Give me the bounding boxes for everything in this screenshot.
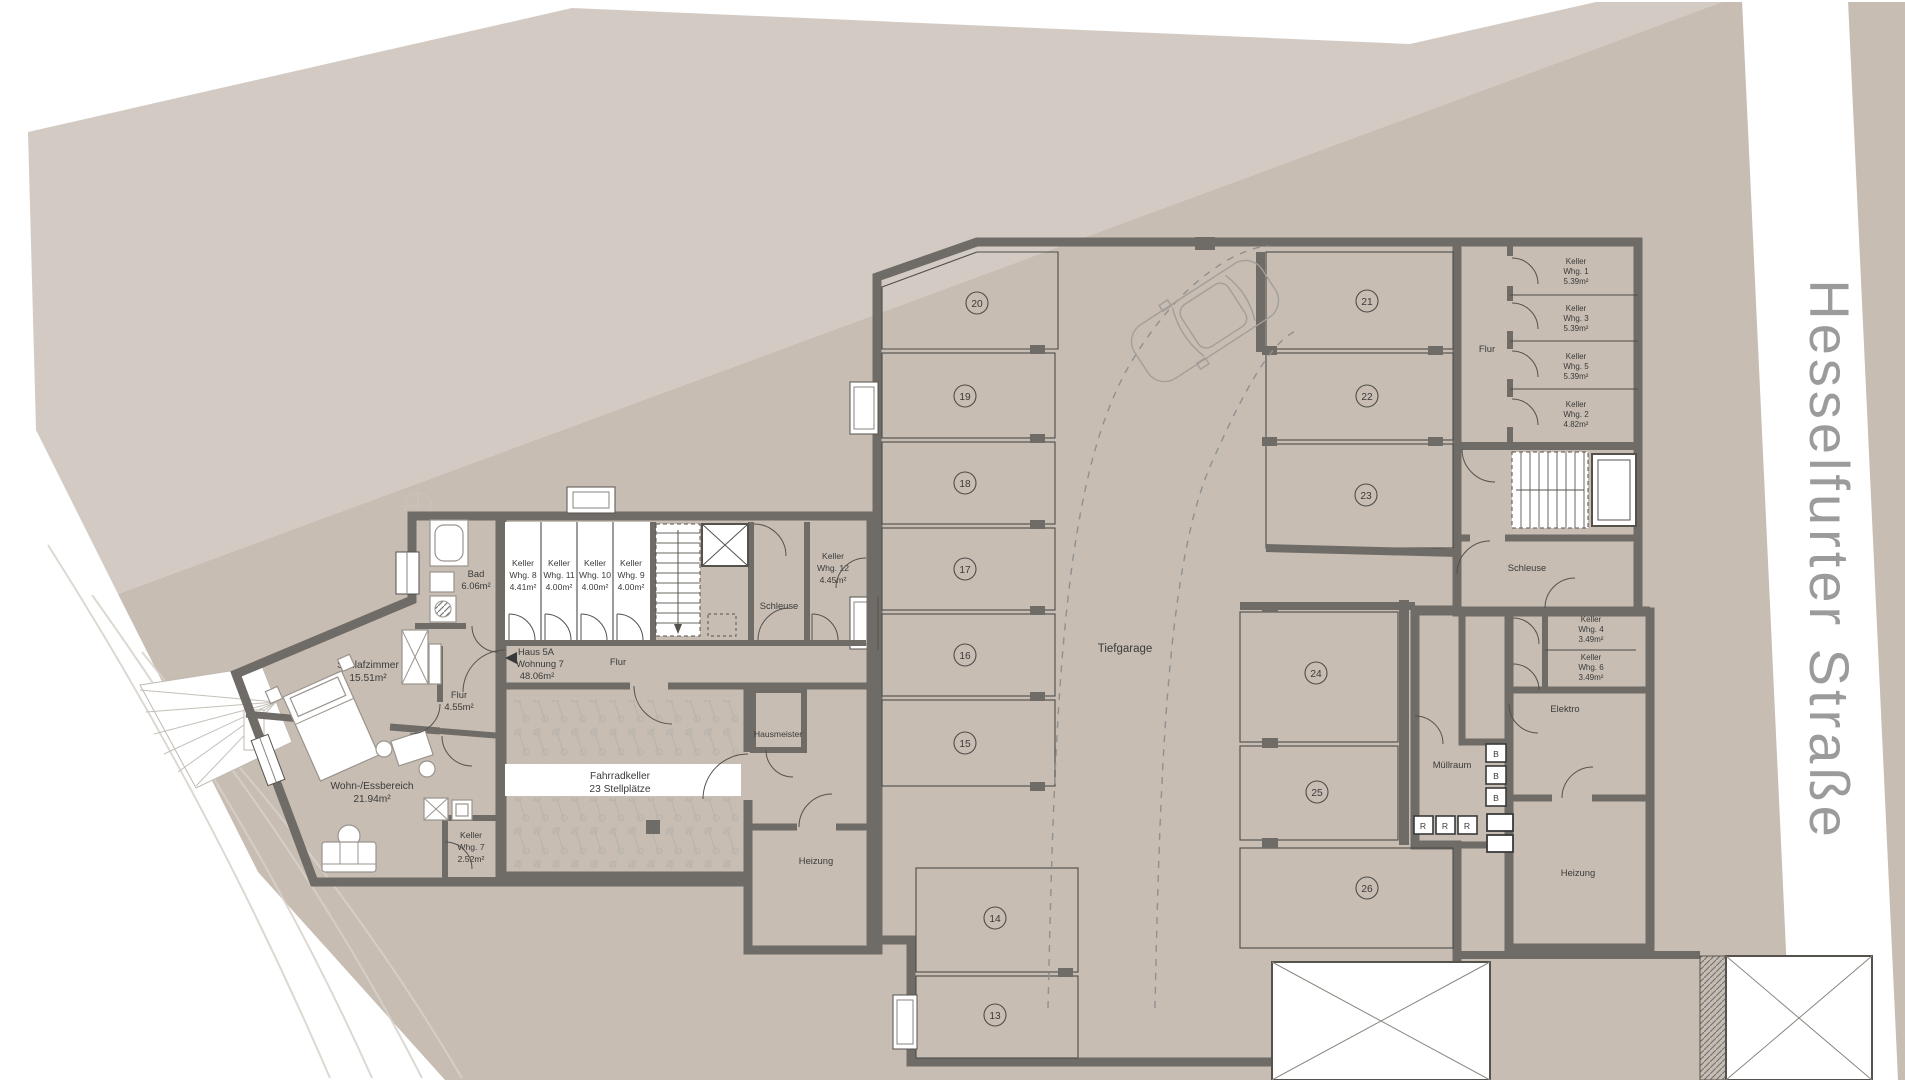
label-heizung-left: Heizung: [799, 855, 833, 866]
label-muellraum: Müllraum: [1433, 759, 1472, 770]
stairwell-right: [1512, 452, 1636, 528]
bike-rack-band: [512, 700, 740, 762]
svg-text:Whg. 11: Whg. 11: [543, 570, 575, 580]
svg-text:4.00m²: 4.00m²: [546, 582, 573, 592]
svg-text:B: B: [1493, 749, 1499, 759]
label-heizung-right: Heizung: [1561, 867, 1595, 878]
svg-text:Keller: Keller: [620, 558, 642, 568]
cellar-row: Keller Whg. 8 4.41m² Keller Whg. 11 4.00…: [505, 522, 650, 640]
chair-icon: [419, 761, 435, 777]
column-post: [646, 820, 660, 834]
chair-icon: [376, 741, 392, 757]
bin-r-icon: R: [1458, 816, 1477, 834]
svg-text:Haus 5A: Haus 5A: [518, 646, 555, 657]
svg-text:13: 13: [989, 1011, 1001, 1022]
label-flur-right: Flur: [1479, 343, 1495, 354]
label-keller-whg6: Keller Whg. 6 3.49m²: [1578, 653, 1604, 682]
svg-text:17: 17: [959, 565, 971, 576]
svg-text:26: 26: [1361, 884, 1373, 895]
label-keller-whg2: Keller Whg. 2 4.82m²: [1563, 400, 1589, 429]
svg-text:14: 14: [989, 914, 1001, 925]
svg-text:Keller: Keller: [1566, 352, 1587, 361]
label-keller-whg8: Keller Whg. 8 4.41m²: [509, 558, 536, 592]
label-keller-whg9: Keller Whg. 9 4.00m²: [617, 558, 644, 592]
svg-text:B: B: [1493, 771, 1499, 781]
svg-text:5.39m²: 5.39m²: [1564, 372, 1589, 381]
svg-text:4.00m²: 4.00m²: [582, 582, 609, 592]
bathtub-icon: [430, 520, 468, 566]
elevator-icon: [1592, 454, 1636, 526]
svg-text:18: 18: [959, 479, 971, 490]
bin-r-icon: R: [1436, 816, 1455, 834]
bike-rack-band: [512, 798, 740, 868]
cellar7-appliances: [424, 798, 472, 820]
light-well-icon: [893, 995, 917, 1049]
floor-plan-page: Hesselfurter Straße 20 19 18 17: [0, 0, 1905, 1080]
svg-text:3.49m²: 3.49m²: [1579, 635, 1604, 644]
sofa-icon: [322, 842, 376, 872]
washer-icon: [430, 596, 456, 622]
light-well-icon: [850, 382, 878, 434]
svg-text:Whg. 3: Whg. 3: [1563, 314, 1589, 323]
svg-text:Whg. 4: Whg. 4: [1578, 625, 1604, 634]
svg-text:21: 21: [1361, 297, 1373, 308]
svg-text:19: 19: [959, 392, 971, 403]
svg-text:4.82m²: 4.82m²: [1564, 420, 1589, 429]
svg-text:Wohn-/Essbereich: Wohn-/Essbereich: [330, 781, 413, 792]
svg-text:Keller: Keller: [584, 558, 606, 568]
label-keller-whg1: Keller Whg. 1 5.39m²: [1563, 257, 1589, 286]
svg-text:20: 20: [971, 299, 983, 310]
svg-text:Whg. 1: Whg. 1: [1563, 267, 1589, 276]
svg-text:Keller: Keller: [1581, 615, 1602, 624]
svg-text:Keller: Keller: [512, 558, 534, 568]
svg-text:4.41m²: 4.41m²: [510, 582, 537, 592]
svg-text:Whg. 5: Whg. 5: [1563, 362, 1589, 371]
svg-text:Flur: Flur: [451, 689, 467, 700]
bin-r-icon: R: [1414, 816, 1433, 834]
label-hausmeister: Hausmeister: [754, 729, 802, 739]
label-schleuse-right: Schleuse: [1508, 562, 1547, 573]
elevator-icon: [702, 524, 748, 566]
sink-icon: [430, 572, 454, 592]
svg-text:Bad: Bad: [468, 568, 485, 579]
svg-text:Fahrradkeller: Fahrradkeller: [590, 771, 651, 782]
bin-b-icon: B: [1486, 788, 1506, 806]
svg-text:Whg. 9: Whg. 9: [617, 570, 644, 580]
svg-text:Keller: Keller: [548, 558, 570, 568]
bin-b-icon: B: [1486, 744, 1506, 762]
label-keller-whg4: Keller Whg. 4 3.49m²: [1578, 615, 1604, 644]
label-keller-whg3: Keller Whg. 3 5.39m²: [1563, 304, 1589, 333]
label-elektro: Elektro: [1550, 703, 1579, 714]
svg-text:Keller: Keller: [1566, 400, 1587, 409]
svg-text:24: 24: [1310, 669, 1322, 680]
svg-text:5.39m²: 5.39m²: [1564, 277, 1589, 286]
floor-plan-svg: Hesselfurter Straße 20 19 18 17: [0, 0, 1905, 1080]
svg-text:Whg. 6: Whg. 6: [1578, 663, 1604, 672]
svg-text:21.94m²: 21.94m²: [353, 794, 391, 805]
bin-b-icon: B: [1486, 766, 1506, 784]
svg-text:B: B: [1493, 793, 1499, 803]
label-keller-whg5: Keller Whg. 5 5.39m²: [1563, 352, 1589, 381]
label-corridor-flur: Flur: [610, 656, 626, 667]
svg-text:Keller: Keller: [822, 551, 844, 561]
shaft-box: [1487, 814, 1513, 831]
svg-text:Keller: Keller: [1581, 653, 1602, 662]
svg-text:Keller: Keller: [1566, 304, 1587, 313]
svg-text:5.39m²: 5.39m²: [1564, 324, 1589, 333]
svg-text:22: 22: [1361, 392, 1373, 403]
svg-text:16: 16: [959, 651, 971, 662]
label-tiefgarage: Tiefgarage: [1098, 643, 1153, 655]
svg-text:4.00m²: 4.00m²: [618, 582, 645, 592]
shaft-box: [1487, 835, 1513, 852]
svg-text:25: 25: [1311, 788, 1323, 799]
svg-text:Whg. 2: Whg. 2: [1563, 410, 1589, 419]
svg-text:23 Stellplätze: 23 Stellplätze: [589, 784, 650, 795]
svg-text:15: 15: [959, 739, 971, 750]
svg-text:4.55m²: 4.55m²: [444, 701, 473, 712]
svg-text:R: R: [1442, 821, 1448, 831]
svg-text:48.06m²: 48.06m²: [520, 670, 554, 681]
svg-text:6.06m²: 6.06m²: [461, 580, 490, 591]
svg-text:Keller: Keller: [1566, 257, 1587, 266]
light-well-icon: [567, 487, 615, 513]
svg-text:R: R: [1420, 821, 1426, 831]
svg-text:Whg. 8: Whg. 8: [509, 570, 536, 580]
window-icon: [396, 552, 419, 594]
street-name-label: Hesselfurter Straße: [1798, 279, 1861, 841]
svg-text:R: R: [1464, 821, 1470, 831]
svg-text:Wohnung 7: Wohnung 7: [516, 658, 564, 669]
svg-text:23: 23: [1360, 491, 1372, 502]
svg-text:15.51m²: 15.51m²: [349, 673, 387, 684]
svg-text:4.45m²: 4.45m²: [820, 575, 847, 585]
ramp-grate: [1700, 956, 1726, 1080]
svg-text:Keller: Keller: [460, 830, 482, 840]
svg-text:3.49m²: 3.49m²: [1579, 673, 1604, 682]
svg-text:Whg. 12: Whg. 12: [817, 563, 849, 573]
svg-text:Whg. 10: Whg. 10: [579, 570, 611, 580]
